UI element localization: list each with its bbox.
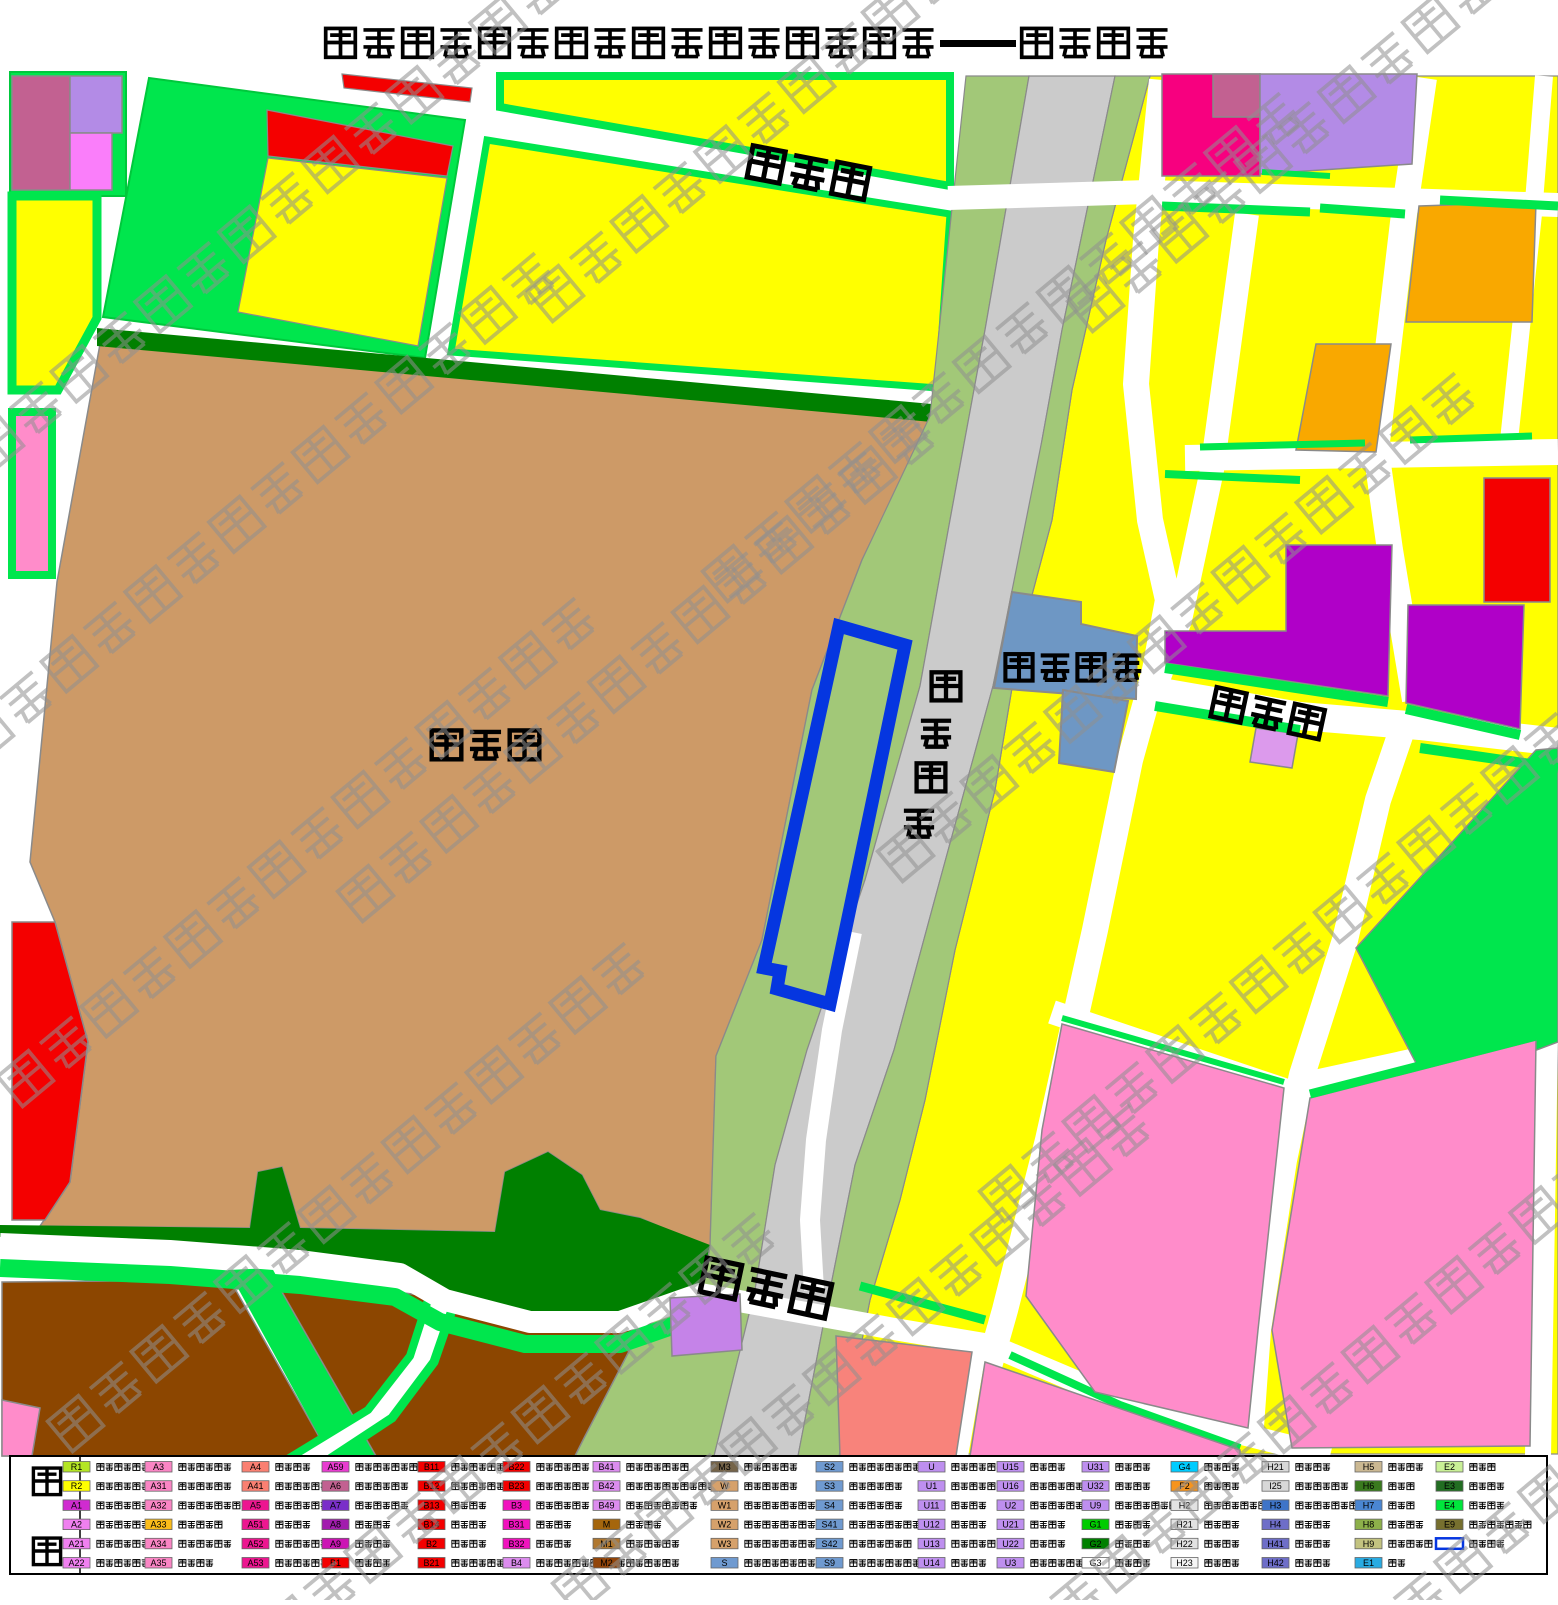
- svg-text:U12: U12: [923, 1520, 940, 1530]
- svg-text:B41: B41: [598, 1462, 614, 1472]
- svg-text:S42: S42: [821, 1539, 837, 1549]
- svg-text:H9: H9: [1363, 1539, 1375, 1549]
- svg-text:U16: U16: [1002, 1481, 1019, 1491]
- svg-text:B3: B3: [511, 1500, 522, 1510]
- svg-text:H41: H41: [1267, 1539, 1284, 1549]
- svg-text:R2: R2: [71, 1481, 83, 1491]
- svg-text:B4: B4: [511, 1558, 522, 1568]
- svg-text:A9: A9: [330, 1539, 341, 1549]
- svg-text:W1: W1: [718, 1500, 732, 1510]
- svg-text:U2: U2: [1005, 1500, 1017, 1510]
- svg-text:A21: A21: [68, 1539, 84, 1549]
- svg-text:A41: A41: [247, 1481, 263, 1491]
- svg-text:H7: H7: [1363, 1500, 1375, 1510]
- svg-text:A8: A8: [330, 1520, 341, 1530]
- svg-text:U15: U15: [1002, 1462, 1019, 1472]
- svg-text:R1: R1: [71, 1462, 83, 1472]
- svg-text:H6: H6: [1363, 1481, 1375, 1491]
- svg-text:U9: U9: [1090, 1500, 1102, 1510]
- svg-text:U1: U1: [926, 1481, 938, 1491]
- svg-text:A2: A2: [71, 1520, 82, 1530]
- svg-text:U13: U13: [923, 1539, 940, 1549]
- svg-text:U3: U3: [1005, 1558, 1017, 1568]
- svg-text:U31: U31: [1087, 1462, 1104, 1472]
- svg-text:E4: E4: [1444, 1500, 1455, 1510]
- svg-text:U14: U14: [923, 1558, 940, 1568]
- svg-text:B11: B11: [424, 1462, 439, 1472]
- svg-text:H5: H5: [1363, 1462, 1375, 1472]
- svg-text:H8: H8: [1363, 1520, 1375, 1530]
- svg-text:B23: B23: [508, 1481, 524, 1491]
- svg-text:S3: S3: [824, 1481, 835, 1491]
- svg-text:B42: B42: [598, 1481, 614, 1491]
- svg-text:A1: A1: [71, 1500, 82, 1510]
- svg-text:S9: S9: [824, 1558, 835, 1568]
- svg-text:B21: B21: [423, 1558, 439, 1568]
- svg-text:S2: S2: [824, 1462, 835, 1472]
- svg-text:W2: W2: [718, 1520, 732, 1530]
- svg-text:E9: E9: [1444, 1520, 1455, 1530]
- svg-text:A3: A3: [153, 1462, 164, 1472]
- svg-text:S4: S4: [824, 1500, 835, 1510]
- svg-text:S: S: [721, 1558, 727, 1568]
- svg-text:H42: H42: [1267, 1558, 1284, 1568]
- svg-text:W3: W3: [718, 1539, 732, 1549]
- svg-text:B31: B31: [508, 1520, 524, 1530]
- svg-text:G1: G1: [1089, 1520, 1101, 1530]
- svg-text:H4: H4: [1270, 1520, 1282, 1530]
- svg-text:A33: A33: [150, 1520, 166, 1530]
- svg-text:U: U: [928, 1462, 935, 1472]
- svg-text:H3: H3: [1270, 1500, 1282, 1510]
- svg-text:U11: U11: [924, 1500, 940, 1510]
- svg-text:A4: A4: [250, 1462, 261, 1472]
- svg-text:E3: E3: [1444, 1481, 1455, 1491]
- svg-text:B13: B13: [423, 1500, 439, 1510]
- svg-text:A22: A22: [68, 1558, 84, 1568]
- svg-text:A52: A52: [247, 1539, 263, 1549]
- svg-text:G2: G2: [1089, 1539, 1101, 1549]
- svg-text:I25: I25: [1269, 1481, 1282, 1491]
- svg-text:A35: A35: [150, 1558, 166, 1568]
- svg-text:B49: B49: [598, 1500, 614, 1510]
- svg-text:H21: H21: [1267, 1462, 1284, 1472]
- svg-text:A31: A31: [150, 1481, 166, 1491]
- svg-text:A51: A51: [247, 1520, 263, 1530]
- svg-text:E2: E2: [1444, 1462, 1455, 1472]
- svg-text:E1: E1: [1363, 1558, 1374, 1568]
- svg-text:A34: A34: [150, 1539, 166, 1549]
- svg-text:U32: U32: [1087, 1481, 1104, 1491]
- svg-text:B2: B2: [426, 1539, 437, 1549]
- svg-text:A7: A7: [330, 1500, 341, 1510]
- svg-text:A5: A5: [250, 1500, 261, 1510]
- svg-text:A53: A53: [247, 1558, 263, 1568]
- svg-text:U22: U22: [1002, 1539, 1019, 1549]
- svg-text:A6: A6: [330, 1481, 341, 1491]
- svg-text:G4: G4: [1178, 1462, 1190, 1472]
- svg-text:H23: H23: [1176, 1558, 1193, 1568]
- svg-text:M: M: [603, 1520, 611, 1530]
- svg-text:S41: S41: [821, 1520, 837, 1530]
- svg-text:A32: A32: [150, 1500, 166, 1510]
- svg-text:B32: B32: [508, 1539, 524, 1549]
- svg-text:A59: A59: [327, 1462, 343, 1472]
- svg-text:U21: U21: [1002, 1520, 1019, 1530]
